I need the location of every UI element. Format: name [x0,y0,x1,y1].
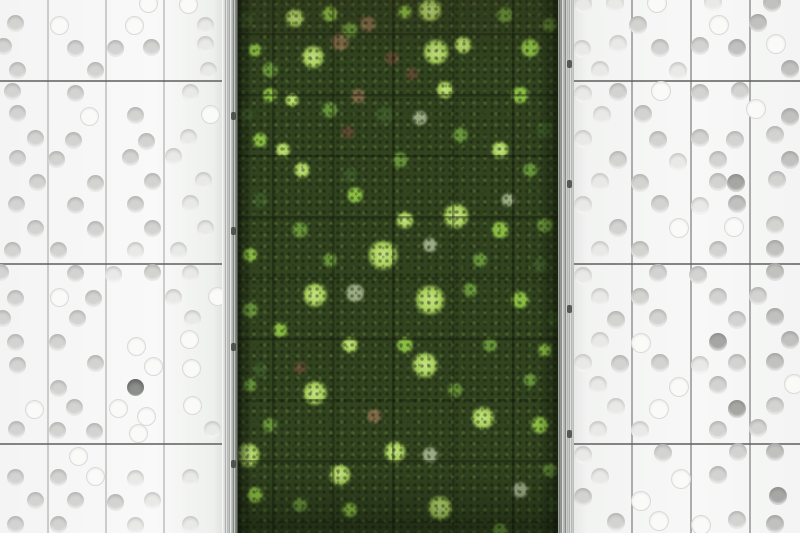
facade-hole [9,62,26,79]
facade-hole [139,0,158,13]
facade-hole [87,175,104,192]
facade-hole [182,265,199,282]
facade-hole [727,174,745,192]
facade-hole [731,82,749,100]
facade-hole [691,515,711,533]
facade-hole [591,468,609,486]
facade-hole [85,290,102,307]
facade-hole [165,289,182,306]
facade-hole [574,267,592,285]
frame-clip [231,343,236,351]
facade-hole [200,62,217,79]
facade-hole [50,288,69,307]
facade-hole [0,264,9,281]
facade-hole [69,447,88,466]
facade-hole [634,105,652,123]
photo-canvas [0,0,800,533]
facade-hole [122,149,139,166]
facade-hole [631,174,649,192]
frame-clip [567,305,572,313]
facade-hole [649,264,667,282]
facade-hole [9,150,26,167]
frame-clip [231,112,236,120]
frame-clip [231,460,236,468]
facade-hole [766,34,786,54]
facade-hole [766,126,784,144]
facade-hole [7,469,24,486]
facade-hole [201,105,220,124]
facade-hole [574,85,592,103]
facade-hole [50,242,67,259]
facade-hole [781,108,799,126]
facade-hole [67,85,84,102]
facade-hole [87,62,104,79]
facade-hole [766,216,784,234]
facade-hole [766,263,784,281]
facade-hole [67,197,84,214]
facade-hole [763,0,781,12]
facade-hole [766,443,784,461]
facade-hole [48,151,65,168]
facade-hole [86,423,103,440]
facade-hole [649,309,667,327]
facade-hole [649,131,667,149]
facade-hole [7,15,24,32]
facade-hole [589,376,607,394]
facade-hole [50,516,67,533]
facade-hole [25,400,44,419]
facade-hole [69,310,86,327]
facade-hole [49,422,66,439]
facade-hole [144,492,161,509]
facade-hole [669,377,689,397]
facade-hole [651,195,669,213]
facade-hole [591,173,609,191]
facade-hole [574,488,592,506]
facade-hole [728,311,746,329]
facade-hole [691,84,709,102]
facade-hole [691,356,709,374]
wall-edge-shading [238,0,558,533]
facade-hole [649,399,669,419]
facade-hole [86,467,105,486]
facade-hole [87,221,104,238]
facade-hole [609,35,627,53]
facade-hole [746,99,766,119]
facade-hole [606,0,624,12]
facade-hole [651,354,669,372]
facade-hole [631,491,651,511]
facade-hole [50,16,69,35]
facade-hole [709,333,727,351]
facade-hole [184,310,201,327]
facade-hole [67,492,84,509]
facade-hole [66,399,83,416]
facade-hole [649,511,669,531]
facade-hole [593,106,611,124]
facade-hole [27,492,44,509]
facade-hole [144,220,161,237]
facade-hole [137,407,156,426]
facade-right [574,0,800,533]
frame-clip [567,180,572,188]
facade-hole [138,133,155,150]
facade-hole [208,287,223,306]
panel-seam-horizontal [0,443,222,445]
facade-hole [589,421,607,439]
facade-hole [127,337,146,356]
facade-hole [781,151,799,169]
facade-hole [729,443,747,461]
facade-hole [7,516,24,533]
facade-hole [669,62,687,80]
facade-hole [631,421,649,439]
facade-hole [65,132,82,149]
facade-hole [182,516,199,533]
facade-hole [180,129,197,146]
facade-hole [709,151,727,169]
facade-hole [609,83,627,101]
facade-hole [204,421,221,438]
facade-hole [144,173,161,190]
facade-hole [766,308,784,326]
facade-hole [4,242,21,259]
facade-hole [728,400,746,418]
facade-hole [8,196,25,213]
facade-hole [180,330,199,349]
facade-hole [144,264,161,281]
facade-left [0,0,222,533]
facade-hole [7,334,24,351]
facade-hole [709,173,727,191]
facade-hole [781,60,799,78]
facade-hole [781,331,799,349]
facade-hole [784,374,800,394]
facade-hole [4,83,21,100]
facade-hole [182,469,199,486]
panel-seam-horizontal [574,80,800,82]
facade-hole [669,153,687,171]
facade-hole [591,241,609,259]
facade-hole [109,399,128,418]
green-wall [238,0,558,533]
facade-hole [80,107,99,126]
facade-hole [50,469,67,486]
facade-hole [197,220,214,237]
facade-hole [574,0,592,13]
facade-hole [182,84,199,101]
facade-hole [127,517,144,533]
facade-hole [709,241,727,259]
facade-hole [574,354,592,372]
facade-hole [574,446,592,464]
facade-hole [709,466,727,484]
facade-hole [671,469,691,489]
facade-hole [709,15,729,35]
frame-right [558,0,574,533]
facade-hole [143,39,160,56]
facade-hole [9,105,26,122]
facade-hole [49,334,66,351]
facade-hole [67,40,84,57]
facade-hole [50,380,67,397]
facade-hole [709,421,727,439]
facade-hole [728,511,746,529]
facade-hole [27,220,44,237]
facade-hole [704,0,722,11]
facade-hole [574,196,592,214]
frame-clip [231,227,236,235]
facade-hole [691,197,709,215]
facade-hole [170,242,187,259]
facade-hole [574,40,591,58]
facade-hole [749,287,767,305]
facade-hole [591,288,609,306]
facade-hole [691,37,709,55]
facade-hole [607,311,625,329]
facade-hole [8,421,25,438]
facade-hole [749,419,767,437]
facade-hole [165,148,182,165]
facade-hole [611,355,629,373]
facade-hole [669,218,689,238]
facade-hole [766,240,784,258]
facade-hole [709,288,727,306]
facade-hole [609,151,627,169]
facade-hole [9,357,26,374]
facade-hole [607,398,625,416]
facade-hole [766,353,784,371]
frame-clip [567,60,572,68]
facade-hole [591,332,609,350]
facade-hole [631,333,651,353]
facade-hole [0,310,11,327]
facade-hole [654,444,672,462]
facade-hole [726,131,744,149]
facade-hole [179,0,198,14]
facade-hole [591,61,609,79]
facade-hole [651,81,671,101]
facade-hole [691,129,709,147]
facade-hole [0,38,12,55]
facade-hole [67,265,84,282]
facade-hole [629,16,647,34]
facade-hole [127,242,144,259]
panel-seam-horizontal [0,80,222,82]
facade-hole [197,17,214,34]
facade-hole [127,379,144,396]
facade-hole [647,0,667,13]
facade-hole [197,36,214,53]
facade-hole [27,130,44,147]
facade-hole [87,355,104,372]
facade-hole [769,487,787,505]
facade-hole [728,39,746,57]
facade-hole [105,266,122,283]
facade-hole [129,424,148,443]
panel-seam-horizontal [574,443,800,445]
facade-hole [607,513,625,531]
facade-hole [766,397,784,415]
facade-hole [651,39,669,57]
facade-hole [144,357,163,376]
facade-hole [728,354,746,372]
facade-hole [183,396,202,415]
facade-hole [182,195,199,212]
facade-hole [127,196,144,213]
frame-clip [567,430,572,438]
facade-hole [768,171,786,189]
frame-left [222,0,238,533]
facade-hole [125,16,144,35]
facade-hole [127,470,144,487]
facade-hole [724,217,744,237]
facade-hole [107,494,124,511]
facade-hole [127,107,144,124]
facade-hole [631,288,649,306]
facade-hole [749,14,767,32]
facade-hole [29,174,46,191]
facade-hole [631,241,649,259]
facade-hole [195,172,212,189]
facade-hole [709,376,727,394]
facade-hole [107,40,124,57]
facade-hole [7,290,24,307]
facade-hole [574,130,592,148]
panel-seam-horizontal [574,263,800,265]
facade-hole [689,266,707,284]
facade-hole [609,219,627,237]
facade-hole [728,195,746,213]
facade-hole [766,515,784,533]
facade-hole [182,359,201,378]
